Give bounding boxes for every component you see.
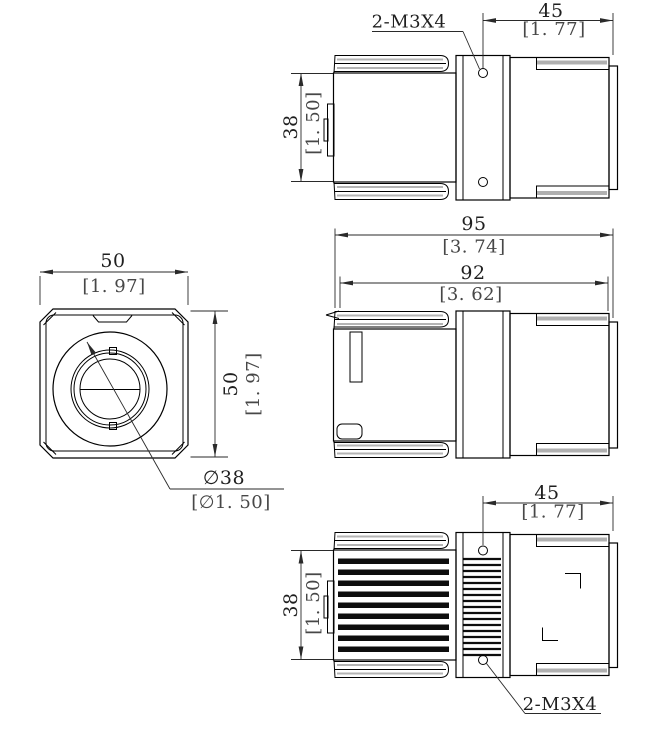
label-corner-marks [543, 574, 581, 641]
rear-end-cap [609, 66, 618, 190]
top-notch [93, 316, 132, 323]
heatsink-fins-flange [464, 559, 502, 655]
top-rail [334, 56, 449, 74]
dim-height-bottom: 38 [1. 50] [280, 551, 333, 660]
thread-callout-text: 2-M3X4 [523, 694, 598, 715]
dim-height-top: 38 [1. 50] [280, 73, 333, 182]
rear-housing [510, 535, 609, 676]
rear-housing [510, 58, 609, 199]
mounting-hole-top [479, 69, 488, 78]
dim-45-in: [1. 77] [521, 502, 584, 523]
dim-38-in: [1. 50] [303, 91, 324, 154]
front-bezel [46, 315, 183, 451]
dim-width: 50 [1. 97] [40, 250, 188, 305]
dim-38-in: [1. 50] [303, 571, 324, 634]
dim-50w-mm: 50 [100, 250, 125, 272]
bottom-rail [334, 182, 449, 200]
bottom-rail [334, 660, 449, 678]
mounting-hole-top [479, 546, 488, 555]
side-connector [337, 424, 362, 439]
front-housing [334, 73, 457, 182]
dim-38-mm: 38 [280, 592, 302, 617]
dim-dia38-mm: ∅38 [203, 467, 245, 489]
front-face-outline [40, 309, 188, 458]
dim-dia38-in: [∅1. 50] [191, 492, 271, 513]
dim-95-mm: 95 [461, 213, 486, 235]
dim-92-in: [3. 62] [439, 284, 502, 305]
side-view-middle: 95 [3. 74] 92 [3. 62] [326, 213, 618, 458]
heatsink-fins [338, 559, 449, 653]
front-view: 50 [1. 97] 50 [1. 97] ∅38 [∅1. 50] [40, 250, 284, 513]
dim-body-length: 92 [3. 62] [340, 262, 608, 311]
side-slot [350, 332, 362, 382]
side-view-top: 45 [1. 77] 38 [1. 50] 2-M3X4 [280, 0, 618, 200]
corner-chamfers [44, 313, 185, 455]
side-view-bottom: 45 [1. 77] 38 [1. 50] 2-M3X4 [280, 482, 618, 715]
top-rail [334, 312, 449, 330]
thread-callout-text: 2-M3X4 [372, 12, 447, 33]
top-rail [334, 533, 449, 551]
dim-50h-in: [1. 97] [243, 352, 264, 415]
mounting-hole-bottom [479, 656, 488, 665]
mounting-flange [456, 311, 510, 458]
dim-92-mm: 92 [460, 262, 485, 284]
dim-38-mm: 38 [280, 114, 302, 139]
mounting-hole-bottom [479, 178, 488, 187]
rear-end-cap [609, 543, 618, 668]
rear-housing [510, 314, 609, 456]
dim-50h-mm: 50 [220, 371, 242, 396]
dim-height: 50 [1. 97] [191, 311, 265, 457]
dim-45-in: [1. 77] [522, 19, 585, 40]
dim-50w-in: [1. 97] [82, 276, 145, 297]
dim-95-in: [3. 74] [442, 237, 505, 258]
rear-end-cap [609, 322, 618, 448]
drawing-canvas: 45 [1. 77] 38 [1. 50] 2-M3X4 [0, 0, 651, 735]
